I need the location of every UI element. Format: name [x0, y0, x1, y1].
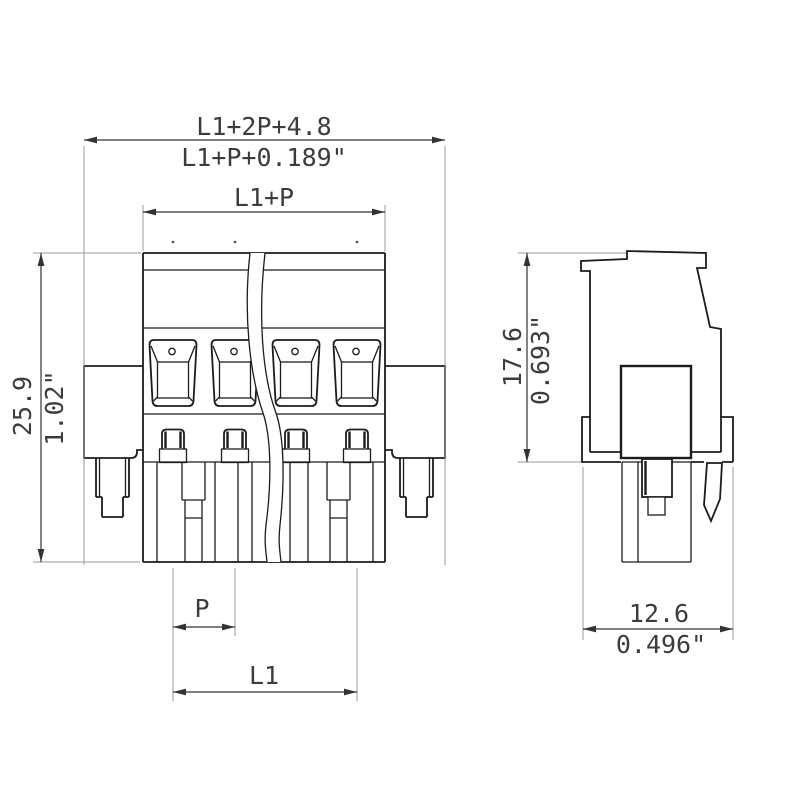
clamp-outer-1 [150, 340, 197, 406]
terminal-block-dimension-drawing: L1+2P+4.8 L1+P+0.189" L1+P 25.9 1.02" P … [0, 0, 800, 800]
clamp-inner-3 [281, 362, 312, 398]
arrowhead [524, 253, 531, 266]
pin-collar-4 [344, 449, 371, 463]
clamp-screw-hole-4 [353, 348, 359, 354]
clamp-inner-1 [158, 362, 189, 398]
pole-mark-2 [234, 241, 237, 244]
dim-housing-width: L1+P [143, 183, 385, 215]
pin-cap-walls-2 [228, 432, 243, 449]
dim-housing-width-label: L1+P [234, 183, 294, 212]
arrowhead [720, 626, 733, 633]
arrowhead [372, 209, 385, 216]
dim-depth: 12.6 0.496" [583, 599, 733, 659]
arrowhead [84, 137, 97, 144]
right-flange-foot-walls [404, 458, 430, 497]
pole-mark-4 [356, 241, 359, 244]
drawing-page: L1+2P+4.8 L1+P+0.189" L1+P 25.9 1.02" P … [0, 0, 800, 800]
clamp-opening-1 [150, 340, 197, 406]
side-housing-outline [581, 251, 733, 462]
arrowhead [222, 624, 235, 631]
arrowhead [143, 209, 156, 216]
dim-depth-metric-label: 12.6 [629, 599, 689, 628]
left-flange-foot-walls [100, 458, 126, 497]
dim-pole-span-label: L1 [249, 661, 279, 690]
right-flange-outline [385, 366, 445, 458]
clamp-screw-hole-1 [169, 348, 175, 354]
right-flange [385, 366, 445, 517]
side-solder-pin [642, 459, 672, 515]
dim-height-imperial-label: 1.02" [40, 370, 69, 445]
arrowhead [173, 624, 186, 631]
dim-pole-span: L1 [173, 661, 357, 695]
clamp-opening-4 [334, 340, 381, 406]
arrowhead [173, 689, 186, 696]
pin-cap-walls-4 [350, 432, 365, 449]
pin-cap-walls-1 [166, 432, 181, 449]
clamp-screw-hole-2 [231, 348, 237, 354]
arrowhead [583, 626, 596, 633]
dim-pitch: P [173, 594, 235, 630]
left-flange-outline [84, 366, 143, 458]
clamp-screw-hole-3 [292, 348, 298, 354]
arrowhead [344, 689, 357, 696]
side-view [581, 251, 733, 562]
dim-side-height-metric-label: 17.6 [498, 327, 527, 387]
arrowhead [38, 549, 45, 562]
pin-cap-walls-3 [289, 432, 304, 449]
arrowhead [524, 449, 531, 462]
side-pin-tip [648, 497, 665, 515]
clamp-outer-4 [334, 340, 381, 406]
dim-overall-width: L1+2P+4.8 L1+P+0.189" [84, 112, 445, 172]
clamp-inner-4 [342, 362, 373, 398]
pin-collar-3 [283, 449, 310, 463]
right-flange-foot [400, 458, 433, 517]
arrowhead [432, 137, 445, 144]
dim-overall-width-metric-label: L1+2P+4.8 [196, 112, 331, 141]
dim-height: 25.9 1.02" [8, 253, 69, 562]
left-flange-foot [96, 458, 129, 517]
dim-overall-width-imperial-label: L1+P+0.189" [181, 143, 347, 172]
dim-height-metric-label: 25.9 [8, 376, 37, 436]
front-view [84, 241, 445, 562]
dim-pitch-label: P [194, 594, 209, 623]
dim-depth-imperial-label: 0.496" [616, 630, 706, 659]
arrowhead [38, 253, 45, 266]
pin-collar-1 [160, 449, 187, 463]
pin-collar-2 [222, 449, 249, 463]
left-flange [84, 366, 143, 517]
solder-pin-4 [344, 430, 371, 463]
clamp-outer-3 [273, 340, 320, 406]
pole-center-marks [172, 241, 359, 244]
pole-mark-1 [172, 241, 175, 244]
clamp-inner-2 [220, 362, 251, 398]
solder-pin-2 [222, 430, 249, 463]
side-wire-chamber [621, 366, 691, 458]
solder-pin-1 [160, 430, 187, 463]
side-latch-hook [704, 463, 722, 521]
clamp-opening-3 [273, 340, 320, 406]
dim-side-height: 17.6 0.693" [498, 253, 555, 462]
dim-side-height-imperial-label: 0.693" [526, 315, 555, 405]
solder-pin-3 [283, 430, 310, 463]
